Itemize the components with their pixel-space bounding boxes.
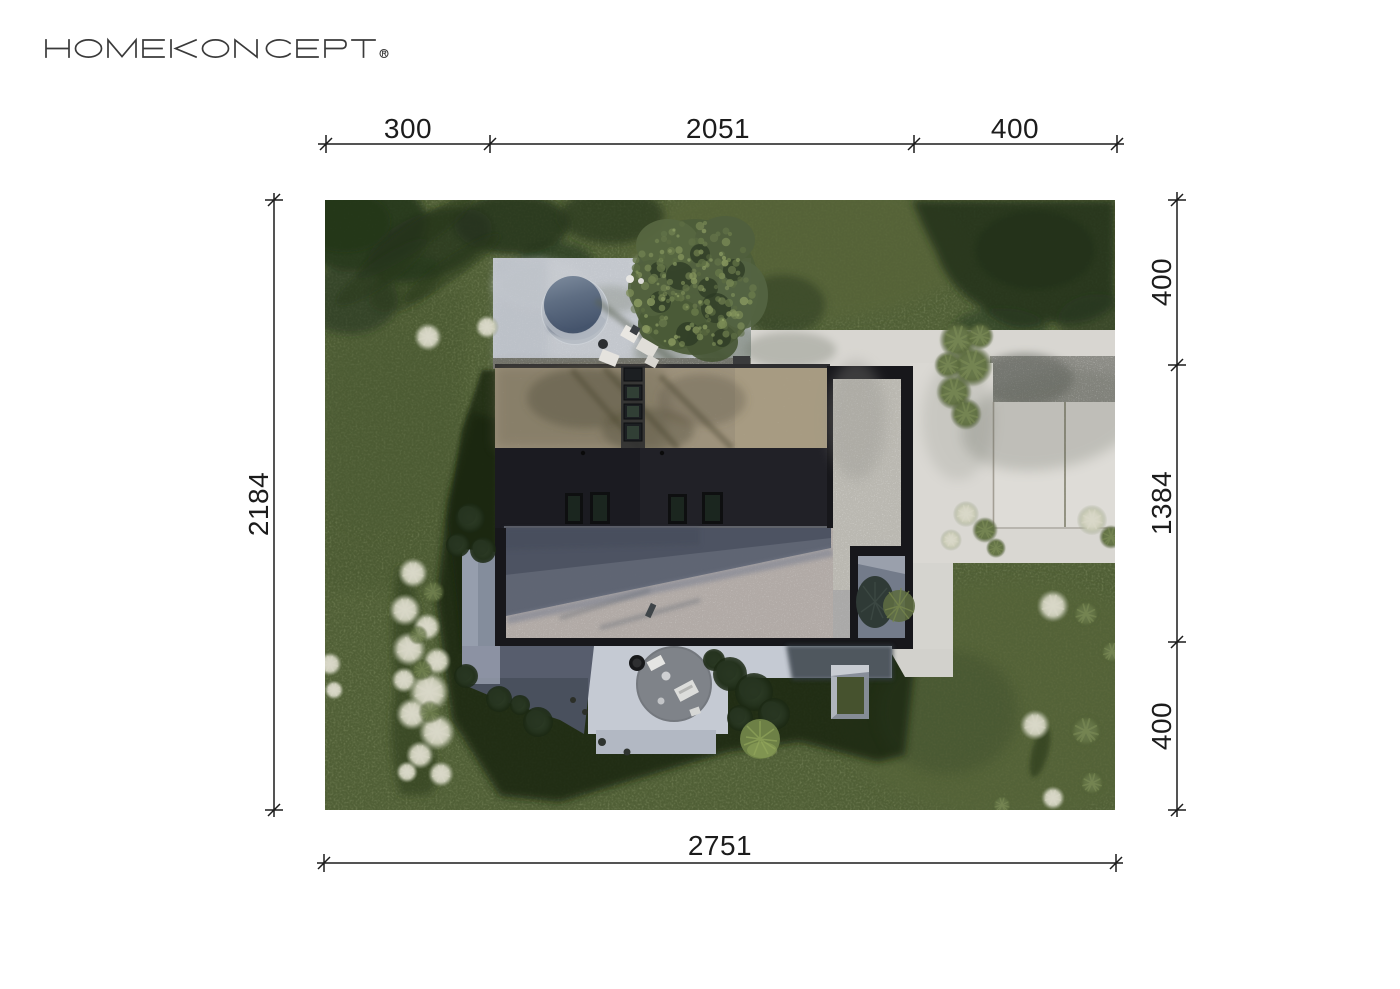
- svg-text:400: 400: [991, 113, 1039, 144]
- svg-text:2751: 2751: [688, 830, 752, 861]
- svg-text:300: 300: [384, 113, 432, 144]
- svg-text:400: 400: [1146, 702, 1177, 750]
- svg-text:2051: 2051: [686, 113, 750, 144]
- svg-text:2184: 2184: [243, 472, 274, 536]
- svg-text:1384: 1384: [1146, 471, 1177, 535]
- svg-text:400: 400: [1146, 258, 1177, 306]
